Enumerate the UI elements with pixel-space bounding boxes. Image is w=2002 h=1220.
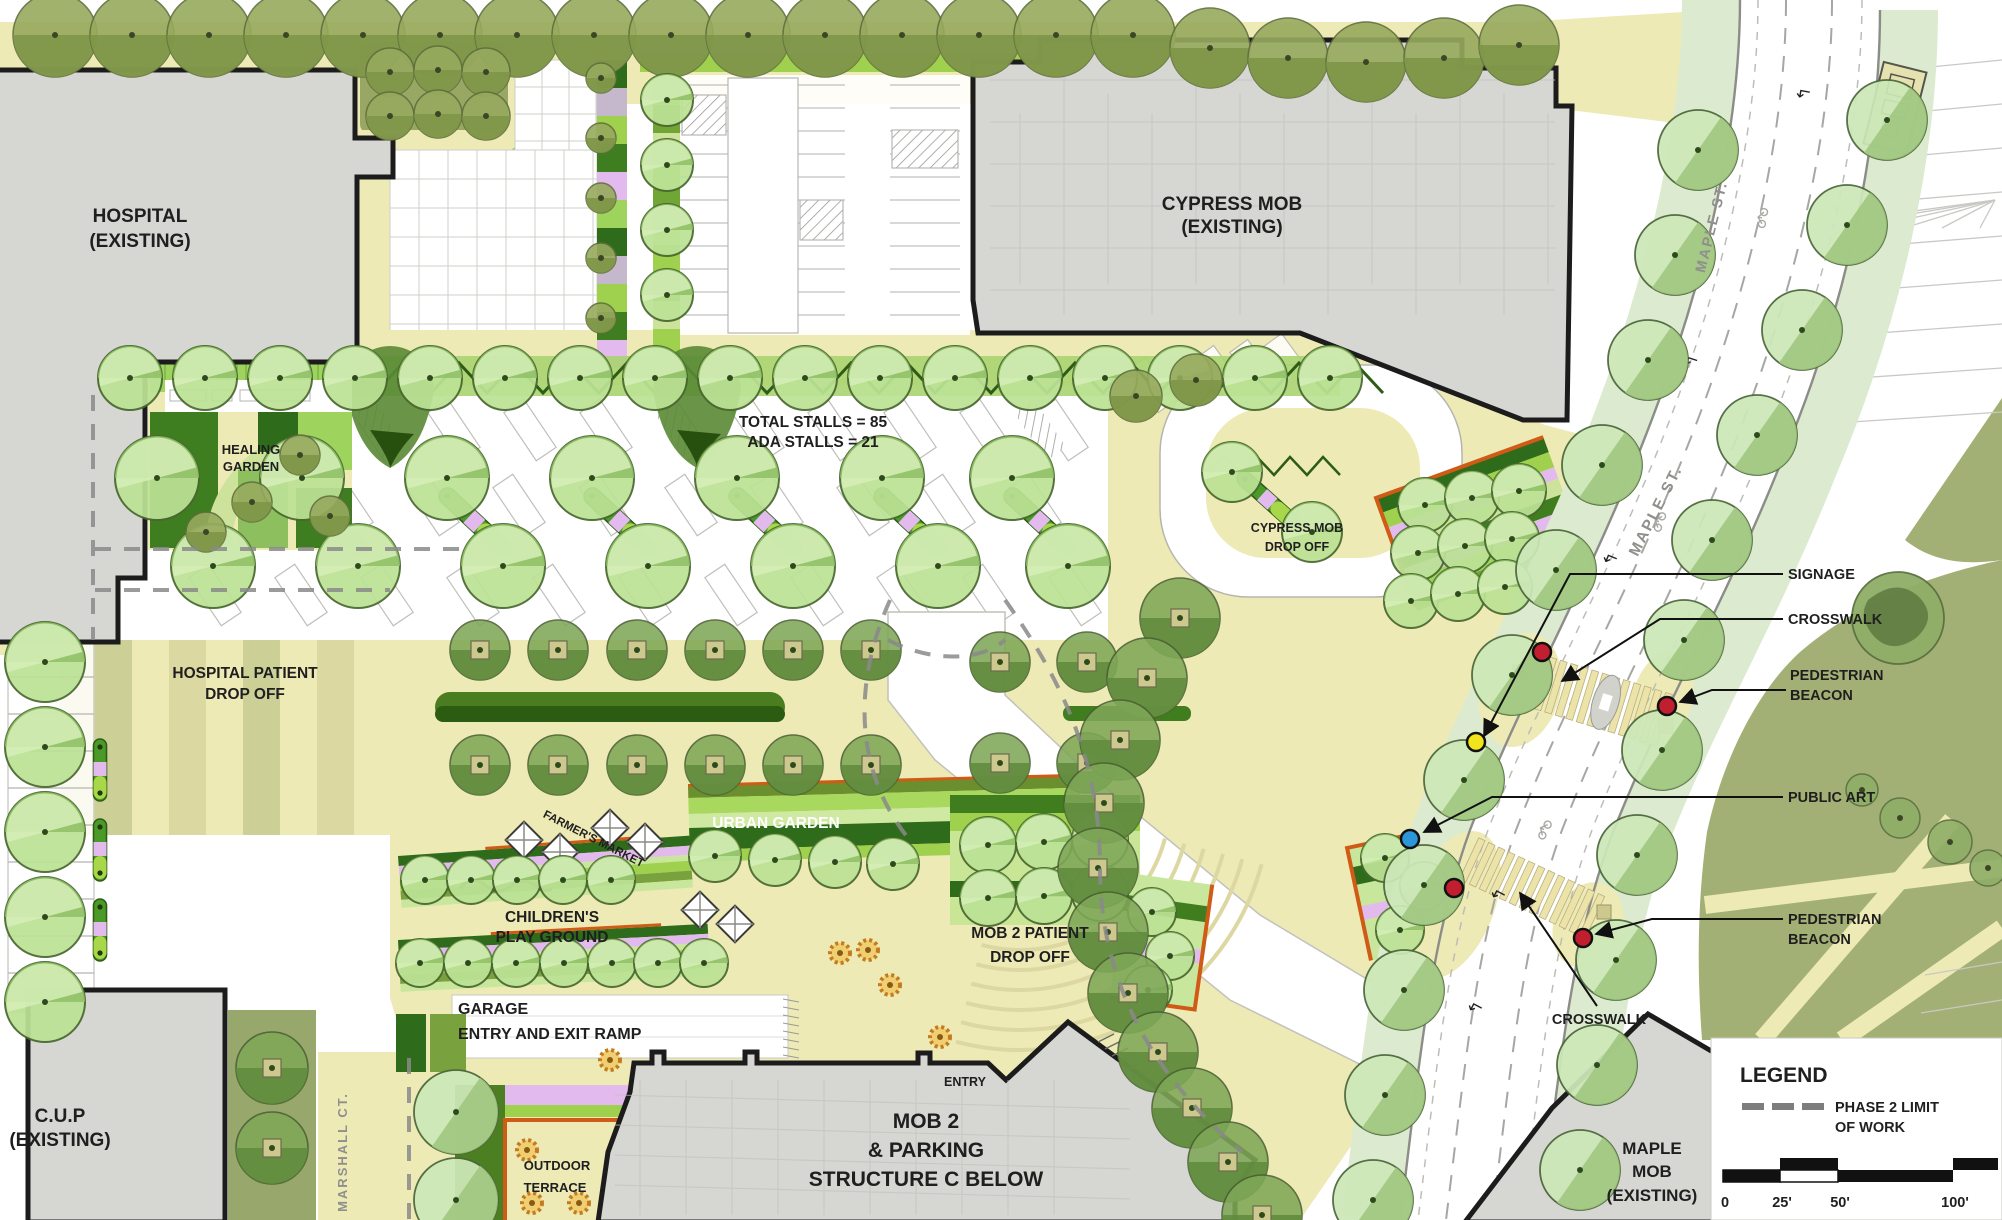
maple-mob-label-3: (EXISTING) <box>1607 1186 1698 1205</box>
ped-beacon-lower-callout-2: BEACON <box>1788 932 1851 948</box>
childrens-label-2: PLAY GROUND <box>496 929 609 946</box>
hospital-drop-label-2: DROP OFF <box>205 686 285 703</box>
legend-title: LEGEND <box>1740 1064 1828 1087</box>
mob2-entry-label: ENTRY <box>944 1075 987 1089</box>
scale-0: 0 <box>1721 1195 1729 1211</box>
hospital-drop-label-1: HOSPITAL PATIENT <box>172 665 318 682</box>
signage-callout: SIGNAGE <box>1788 567 1855 583</box>
maple-mob-label-2: MOB <box>1632 1162 1672 1181</box>
scale-50: 50' <box>1830 1195 1850 1211</box>
healing-garden-label-2: GARDEN <box>223 459 279 474</box>
cypress-drop-label-1: CYPRESS MOB <box>1251 521 1343 535</box>
mob2-drop-label-2: DROP OFF <box>990 949 1070 966</box>
cypress-label-2: (EXISTING) <box>1181 217 1282 238</box>
mob2-label-1: MOB 2 <box>893 1110 960 1133</box>
cup-label-2: (EXISTING) <box>9 1130 110 1151</box>
scale-25: 25' <box>1772 1195 1792 1211</box>
maple-mob-label-1: MAPLE <box>1622 1139 1682 1158</box>
childrens-label-1: CHILDREN'S <box>505 909 599 926</box>
ada-stalls-label: ADA STALLS = 21 <box>747 434 879 451</box>
cup-label-1: C.U.P <box>35 1106 86 1127</box>
garage-label-1: GARAGE <box>458 1001 529 1018</box>
outdoor-terrace-label-1: OUTDOOR <box>524 1158 591 1173</box>
site-plan: ↰↰↰↰↰ HOSPITAL (EXISTING) CYPRESS MOB (E… <box>0 0 2002 1220</box>
cypress-label-1: CYPRESS MOB <box>1162 194 1302 215</box>
ped-beacon-upper-callout-2: BEACON <box>1790 688 1853 704</box>
marshall-ct-label: MARSHALL CT. <box>335 1092 350 1212</box>
crosswalk-lower-callout: CROSSWALK <box>1552 1012 1647 1028</box>
ped-beacon-lower-callout-1: PEDESTRIAN <box>1788 912 1881 928</box>
total-stalls-label: TOTAL STALLS = 85 <box>739 414 888 431</box>
scale-100: 100' <box>1941 1195 1969 1211</box>
outdoor-terrace-label-2: TERRACE <box>524 1180 587 1195</box>
crosswalk-upper-callout: CROSSWALK <box>1788 612 1883 628</box>
healing-garden-label-1: HEALING <box>222 442 281 457</box>
mob2-label-2: & PARKING <box>868 1139 984 1162</box>
garage-label-2: ENTRY AND EXIT RAMP <box>458 1026 642 1043</box>
legend: LEGEND PHASE 2 LIMIT OF WORK 0 25' 50' 1… <box>1711 1038 2002 1220</box>
mob2-label-3: STRUCTURE C BELOW <box>809 1168 1044 1191</box>
legend-phase-label-2: OF WORK <box>1835 1120 1906 1136</box>
phase-2-limit-symbol <box>1742 1103 1824 1110</box>
urban-garden-label: URBAN GARDEN <box>712 815 839 832</box>
site-plan-canvas: ↰↰↰↰↰ HOSPITAL (EXISTING) CYPRESS MOB (E… <box>0 0 2002 1220</box>
public-art-callout: PUBLIC ART <box>1788 790 1875 806</box>
hospital-label-2: (EXISTING) <box>89 231 190 252</box>
cypress-drop-label-2: DROP OFF <box>1265 540 1330 554</box>
hospital-label-1: HOSPITAL <box>93 206 188 227</box>
mob2-drop-label-1: MOB 2 PATIENT <box>971 925 1089 942</box>
ped-beacon-upper-callout-1: PEDESTRIAN <box>1790 668 1883 684</box>
legend-phase-label-1: PHASE 2 LIMIT <box>1835 1100 1939 1116</box>
